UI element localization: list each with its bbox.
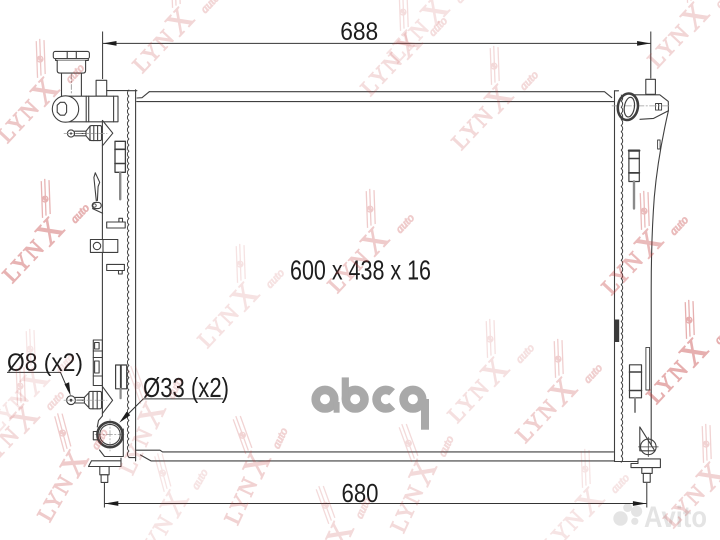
svg-text:Ø33 (x2): Ø33 (x2) bbox=[143, 372, 229, 403]
svg-text:688: 688 bbox=[340, 18, 378, 46]
